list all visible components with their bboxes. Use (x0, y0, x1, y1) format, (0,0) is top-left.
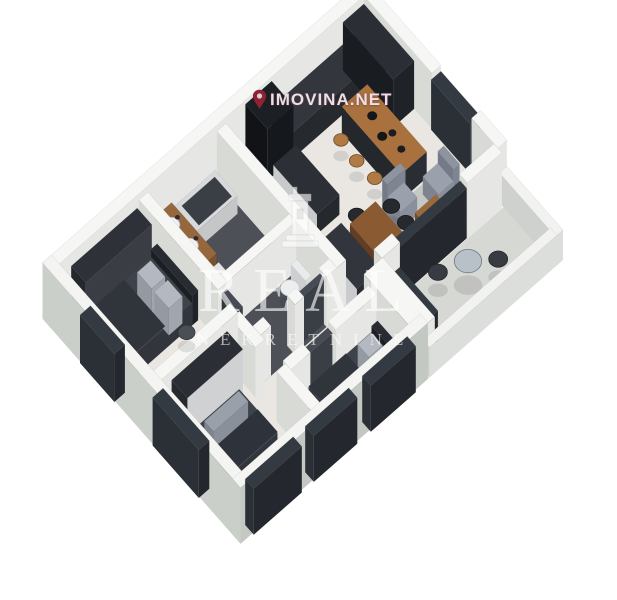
pendant-lamp-2 (377, 132, 387, 141)
faucet-2 (193, 236, 198, 241)
island-cooktop (397, 146, 405, 153)
floorplan-3d-render (0, 0, 617, 600)
island-sink (388, 129, 396, 136)
floorplan-stage: IMOVINA.NET REAL NEKRETNINE (0, 0, 617, 600)
faucet-1 (175, 215, 180, 220)
pendant-lamp-1 (367, 111, 377, 120)
